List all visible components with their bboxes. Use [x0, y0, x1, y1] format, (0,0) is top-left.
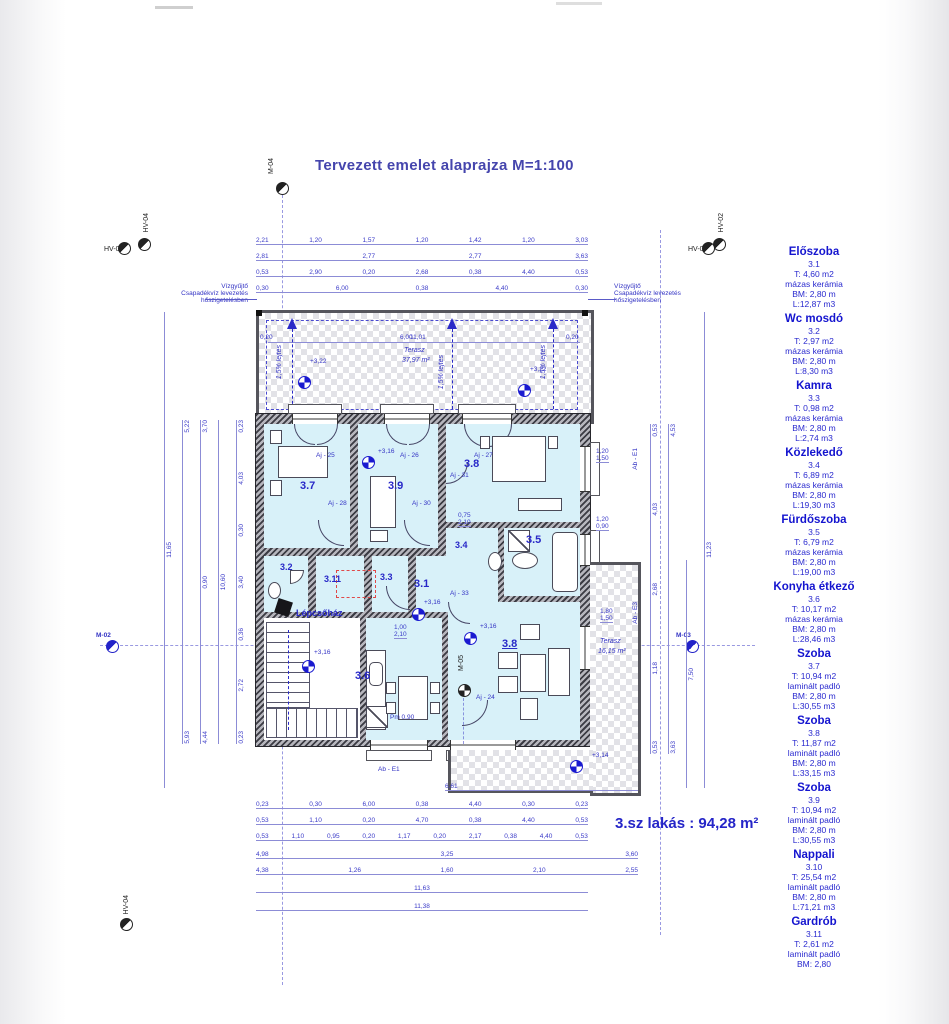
legend-room-floor: mázas kerámia [750, 413, 878, 423]
legend-room-height: BM: 2,80 m [750, 892, 878, 902]
room-label-3-2: 3.2 [280, 562, 293, 572]
window [370, 740, 428, 750]
furniture-chair [386, 702, 396, 714]
section-marker-hv04-bottom-label: HV-04 [123, 895, 130, 914]
window [580, 626, 590, 670]
dim-row-bottom-1: 0,230,306,000,384,400,300,23 [256, 800, 588, 809]
terrace-edge-dim: 0,20 [566, 334, 579, 341]
window [462, 414, 512, 424]
dim-row-bottom-4: 4,983,253,60 [256, 850, 638, 859]
legend-room-volume: L:8,30 m3 [750, 366, 878, 376]
apartment-total: 3.sz lakás : 94,28 m² [615, 815, 758, 832]
dim-row-bottom-3: 0,531,100,950,201,170,202,170,384,400,53 [256, 832, 588, 841]
legend-room-name: Wc mosdó [750, 313, 878, 326]
window-dim-pair: 1,20 0,90 [596, 516, 609, 531]
dim-col-left-1: 11,65 [164, 312, 174, 788]
legend-room-area: T: 2,61 m2 [750, 939, 878, 949]
door-label-aj31: Aj - 31 [450, 472, 469, 479]
furniture-nightstand [270, 430, 282, 444]
legend-room-area: T: 25,54 m2 [750, 872, 878, 882]
section-marker-m05-label: M-05 [458, 655, 465, 671]
furniture-side-table [498, 652, 518, 669]
slope-label: 1,5% lejtés [438, 355, 446, 389]
legend-room-volume: L:19,00 m3 [750, 567, 878, 577]
dim-row-top-1: 2,211,201,571,201,421,203,03 [256, 236, 588, 245]
page-edge-left [0, 0, 66, 1024]
legend-room-entry: Szoba 3.9 T: 10,94 m2 laminált padló BM:… [750, 782, 878, 845]
legend-room-area: T: 2,97 m2 [750, 336, 878, 346]
door-label-aj24: Aj - 24 [476, 694, 495, 701]
legend-room-number: 3.6 [750, 594, 878, 604]
room-label-3-3: 3.3 [380, 572, 393, 582]
level-label: +3,16 [424, 599, 440, 606]
right-terrace-level: +3,14 [592, 752, 608, 759]
furniture-side-table [498, 676, 518, 693]
legend-room-area: T: 4,60 m2 [750, 269, 878, 279]
room-3-4 [446, 528, 498, 556]
terrace-corner-post [582, 310, 588, 316]
slope-label: 1,5% lejtés [276, 345, 284, 379]
room-label-3-1: 3.1 [414, 578, 429, 590]
legend-room-name: Előszoba [750, 246, 878, 259]
legend-room-floor: mázas kerámia [750, 614, 878, 624]
slope-arrow-stem [452, 329, 453, 409]
furniture-toilet [488, 552, 502, 571]
right-terrace-name: Terasz [600, 638, 621, 646]
section-marker-m04-icon [276, 182, 289, 195]
scan-artifact [155, 6, 193, 9]
section-marker-m05-icon [458, 684, 471, 697]
legend-room-height: BM: 2,80 m [750, 557, 878, 567]
furniture-double-bed [492, 436, 546, 482]
dim-row-bottom-6: 11,63 [256, 884, 588, 893]
legend-room-name: Konyha étkező [750, 581, 878, 594]
furniture-sink [512, 552, 538, 569]
furniture-bathtub [552, 532, 578, 592]
legend-room-volume: L:71,21 m3 [750, 902, 878, 912]
terrace-corner-post [256, 310, 262, 316]
slope-arrow-icon [548, 318, 558, 329]
furniture-kitchen-sink [369, 662, 383, 686]
legend-room-height: BM: 2,80 m [750, 490, 878, 500]
slope-arrow-icon [447, 318, 457, 329]
parapet-label: Pm 0,90 [390, 714, 414, 721]
room-label-3-4: 3.4 [455, 540, 468, 550]
legend-room-number: 3.1 [750, 259, 878, 269]
level-point-icon [412, 608, 425, 621]
window-sill [458, 404, 516, 414]
right-terrace-area: 16,15 m² [598, 648, 626, 656]
legend-room-floor: mázas kerámia [750, 346, 878, 356]
legend-room-height: BM: 2,80 m [750, 825, 878, 835]
legend-room-height: BM: 2,80 m [750, 289, 878, 299]
legend-room-number: 3.5 [750, 527, 878, 537]
level-point-icon [570, 760, 583, 773]
legend-room-volume: L:12,87 m3 [750, 299, 878, 309]
section-marker-hv04-top-icon [138, 238, 151, 251]
slope-arrow-stem [553, 329, 554, 409]
level-point-icon [302, 660, 315, 673]
legend-room-height: BM: 2,80 m [750, 423, 878, 433]
legend-room-height: BM: 2,80 m [750, 356, 878, 366]
dim-col-left-2: 5,225,93 [182, 420, 192, 744]
legend-room-name: Nappali [750, 849, 878, 862]
legend-room-height: BM: 2,80 m [750, 691, 878, 701]
furniture-toilet [268, 582, 281, 599]
drawing-title: Tervezett emelet alaprajza M=1:100 [315, 157, 574, 174]
legend-room-entry: Szoba 3.7 T: 10,94 m2 laminált padló BM:… [750, 648, 878, 711]
legend-room-name: Szoba [750, 648, 878, 661]
legend-room-floor: laminált padló [750, 815, 878, 825]
room-label-3-11: 3.11 [324, 574, 341, 584]
section-marker-hv03-right-icon [702, 242, 715, 255]
section-marker-hv04-top-label: HV-04 [143, 213, 150, 232]
dim-col-left-3: 3,700,904,44 [200, 420, 210, 744]
window-sill [380, 404, 434, 414]
stairwell-label: Lépcsőház [296, 608, 343, 618]
room-label-living: 3.8 [502, 638, 517, 650]
legend-room-entry: Előszoba 3.1 T: 4,60 m2 mázas kerámia BM… [750, 246, 878, 309]
legend-room-floor: laminált padló [750, 748, 878, 758]
legend-room-volume: L:30,55 m3 [750, 701, 878, 711]
legend-room-number: 3.8 [750, 728, 878, 738]
terrace-level: +3,22 [310, 358, 326, 365]
legend-room-entry: Nappali 3.10 T: 25,54 m2 laminált padló … [750, 849, 878, 912]
legend-room-area: T: 10,94 m2 [750, 671, 878, 681]
legend-room-entry: Közlekedő 3.4 T: 6,89 m2 mázas kerámia B… [750, 447, 878, 510]
room-label-3-7: 3.7 [300, 480, 315, 492]
dim-col-right-3: 7,50 [686, 560, 696, 788]
legend-room-name: Gardrób [750, 916, 878, 929]
legend-room-entry: Konyha étkező 3.6 T: 10,17 m2 mázas kerá… [750, 581, 878, 644]
right-terrace [590, 562, 641, 796]
rainwater-note-left: Vízgyűjtő Csapadékvíz levezetés hősziget… [140, 283, 248, 304]
furniture-bed [278, 446, 328, 478]
legend-room-entry: Wc mosdó 3.2 T: 2,97 m2 mázas kerámia BM… [750, 313, 878, 376]
furniture-sofa [548, 648, 570, 696]
stairs-walk-line [288, 630, 289, 730]
legend-room-number: 3.9 [750, 795, 878, 805]
door-label-aj27: Aj - 27 [474, 452, 493, 459]
window [580, 534, 590, 566]
slope-label: 1,5% lejtés [540, 345, 548, 379]
legend-room-height: BM: 2,80 m [750, 758, 878, 768]
furniture-nightstand [480, 436, 490, 449]
legend-room-entry: Gardrób 3.11 T: 2,61 m2 laminált padló B… [750, 916, 878, 969]
furniture-wardrobe [518, 498, 562, 511]
room-label-3-9: 3.9 [388, 480, 403, 492]
terrace-width-value: 11,01 [410, 334, 426, 341]
legend-room-volume: L:30,55 m3 [750, 835, 878, 845]
terrace-level: +3,22 [530, 366, 546, 373]
level-point-icon [518, 384, 531, 397]
legend-room-number: 3.10 [750, 862, 878, 872]
dim-row-bottom-7: 11,38 [256, 902, 588, 911]
legend-room-floor: laminált padló [750, 882, 878, 892]
dim-row-top-2: 2,812,772,773,63 [256, 252, 588, 261]
door-label-aj28: Aj - 28 [328, 500, 347, 507]
furniture-nightstand [548, 436, 558, 449]
detail-marker-m02-icon [106, 640, 119, 653]
furniture-stove [366, 706, 388, 728]
section-marker-hv03-left-icon [118, 242, 131, 255]
legend-room-name: Kamra [750, 380, 878, 393]
legend-room-area: T: 6,79 m2 [750, 537, 878, 547]
rainwater-note-right: Vízgyűjtő Csapadékvíz levezetés hősziget… [614, 283, 722, 304]
slope-arrow-icon [287, 318, 297, 329]
legend-room-entry: Kamra 3.3 T: 0,98 m2 mázas kerámia BM: 2… [750, 380, 878, 443]
legend-room-area: T: 0,98 m2 [750, 403, 878, 413]
dim-row-top-3: 0,532,900,202,680,384,400,53 [256, 268, 588, 277]
window [384, 414, 430, 424]
scan-artifact [556, 2, 602, 5]
legend-room-floor: laminált padló [750, 681, 878, 691]
legend-room-area: T: 6,89 m2 [750, 470, 878, 480]
legend-room-height: BM: 2,80 [750, 959, 878, 969]
door-label-aj33: Aj - 33 [450, 590, 469, 597]
furniture-chair [386, 682, 396, 694]
level-point-icon [464, 632, 477, 645]
legend-room-name: Szoba [750, 715, 878, 728]
legend-room-name: Szoba [750, 782, 878, 795]
furniture-nightstand [370, 530, 388, 542]
note-leader-right [588, 299, 616, 300]
window [450, 740, 516, 750]
dim-col-left-4: 10,60 [218, 420, 228, 744]
legend-room-volume: L:28,46 m3 [750, 634, 878, 644]
stairs-winder [266, 708, 358, 738]
terrace-dim-line [268, 342, 580, 343]
room-label-3-8: 3.8 [464, 458, 479, 470]
terrace-area: 37,97 m² [402, 357, 430, 365]
legend-room-volume: L:19,30 m3 [750, 500, 878, 510]
window [292, 414, 338, 424]
window-sill [288, 404, 342, 414]
slope-arrow-stem [292, 329, 293, 409]
legend-room-area: T: 11,87 m2 [750, 738, 878, 748]
door-dim-pair: 1,00 2,10 [394, 624, 407, 639]
furniture-armchair [520, 698, 538, 720]
window-dim-pair: 1,20 1,50 [596, 448, 609, 463]
section-line-m05 [463, 698, 464, 744]
section-marker-hv04-bottom-icon [120, 918, 133, 931]
legend-room-floor: mázas kerámia [750, 279, 878, 289]
furniture-tv-bench [520, 624, 540, 640]
detail-marker-m02-label: M-02 [96, 632, 111, 639]
furniture-chair [430, 682, 440, 694]
dim-col-right-1: 0,534,032,681,180,53 [650, 424, 660, 754]
section-marker-m04-label: M-04 [268, 158, 275, 174]
section-marker-hv02-label: HV-02 [718, 213, 725, 232]
legend-room-area: T: 10,17 m2 [750, 604, 878, 614]
room-legend: Előszoba 3.1 T: 4,60 m2 mázas kerámia BM… [750, 246, 878, 973]
terrace-name: Terasz [404, 347, 425, 355]
door-label-aj30: Aj - 30 [412, 500, 431, 507]
window-label-abe1-bottom: Ab - E1 [378, 766, 400, 773]
legend-room-floor: laminált padló [750, 949, 878, 959]
level-label: +3,16 [378, 448, 394, 455]
legend-room-name: Fürdőszoba [750, 514, 878, 527]
legend-room-entry: Szoba 3.8 T: 11,87 m2 laminált padló BM:… [750, 715, 878, 778]
level-point-icon [298, 376, 311, 389]
dim-row-bottom-5: 4,381,261,602,102,55 [256, 866, 638, 875]
room-label-3-6: 3.6 [355, 670, 370, 682]
note-leader-left [205, 299, 257, 300]
furniture-chair [430, 702, 440, 714]
legend-room-volume: L:2,74 m3 [750, 433, 878, 443]
legend-room-floor: mázas kerámia [750, 547, 878, 557]
legend-room-entry: Fürdőszoba 3.5 T: 6,79 m2 mázas kerámia … [750, 514, 878, 577]
legend-room-number: 3.2 [750, 326, 878, 336]
door-dim-pair: 0,75 2,10 [458, 512, 471, 527]
furniture-coffee-table [520, 654, 546, 692]
dim-col-right-2: 4,533,63 [668, 424, 678, 754]
legend-room-number: 3.7 [750, 661, 878, 671]
dim-col-left-5: 0,234,030,303,400,362,720,23 [236, 420, 246, 744]
window-sill [366, 750, 432, 761]
legend-room-number: 3.4 [750, 460, 878, 470]
room-label-3-5: 3.5 [526, 534, 541, 546]
window-label-abe1: Ab - E1 [632, 448, 639, 470]
legend-room-name: Közlekedő [750, 447, 878, 460]
page-edge-right [878, 0, 949, 1024]
level-label: +3,16 [314, 649, 330, 656]
door-label-aj25: Aj - 25 [316, 452, 335, 459]
dim-row-top-4: 0,306,000,384,400,30 [256, 284, 588, 293]
dim-row-bottom-extra: 6,61 [445, 782, 638, 791]
legend-room-height: BM: 2,80 m [750, 624, 878, 634]
marked-opening [336, 570, 376, 598]
legend-room-number: 3.3 [750, 393, 878, 403]
dim-row-bottom-2: 0,531,100,204,700,384,400,53 [256, 816, 588, 825]
window [580, 446, 590, 492]
window-dim-pair: 1,80 1,50 [600, 608, 613, 623]
level-point-icon [362, 456, 375, 469]
legend-room-floor: mázas kerámia [750, 480, 878, 490]
door-label-aj26: Aj - 26 [400, 452, 419, 459]
terrace-edge-dim: 0,20 [260, 334, 273, 341]
level-label: +3,16 [480, 623, 496, 630]
furniture-nightstand [270, 480, 282, 496]
legend-room-volume: L:33,15 m3 [750, 768, 878, 778]
legend-room-number: 3.11 [750, 929, 878, 939]
dim-col-right-4: 11,23 [704, 312, 714, 788]
legend-room-area: T: 10,94 m2 [750, 805, 878, 815]
window-label-abe3: Ab - E3 [632, 602, 639, 624]
